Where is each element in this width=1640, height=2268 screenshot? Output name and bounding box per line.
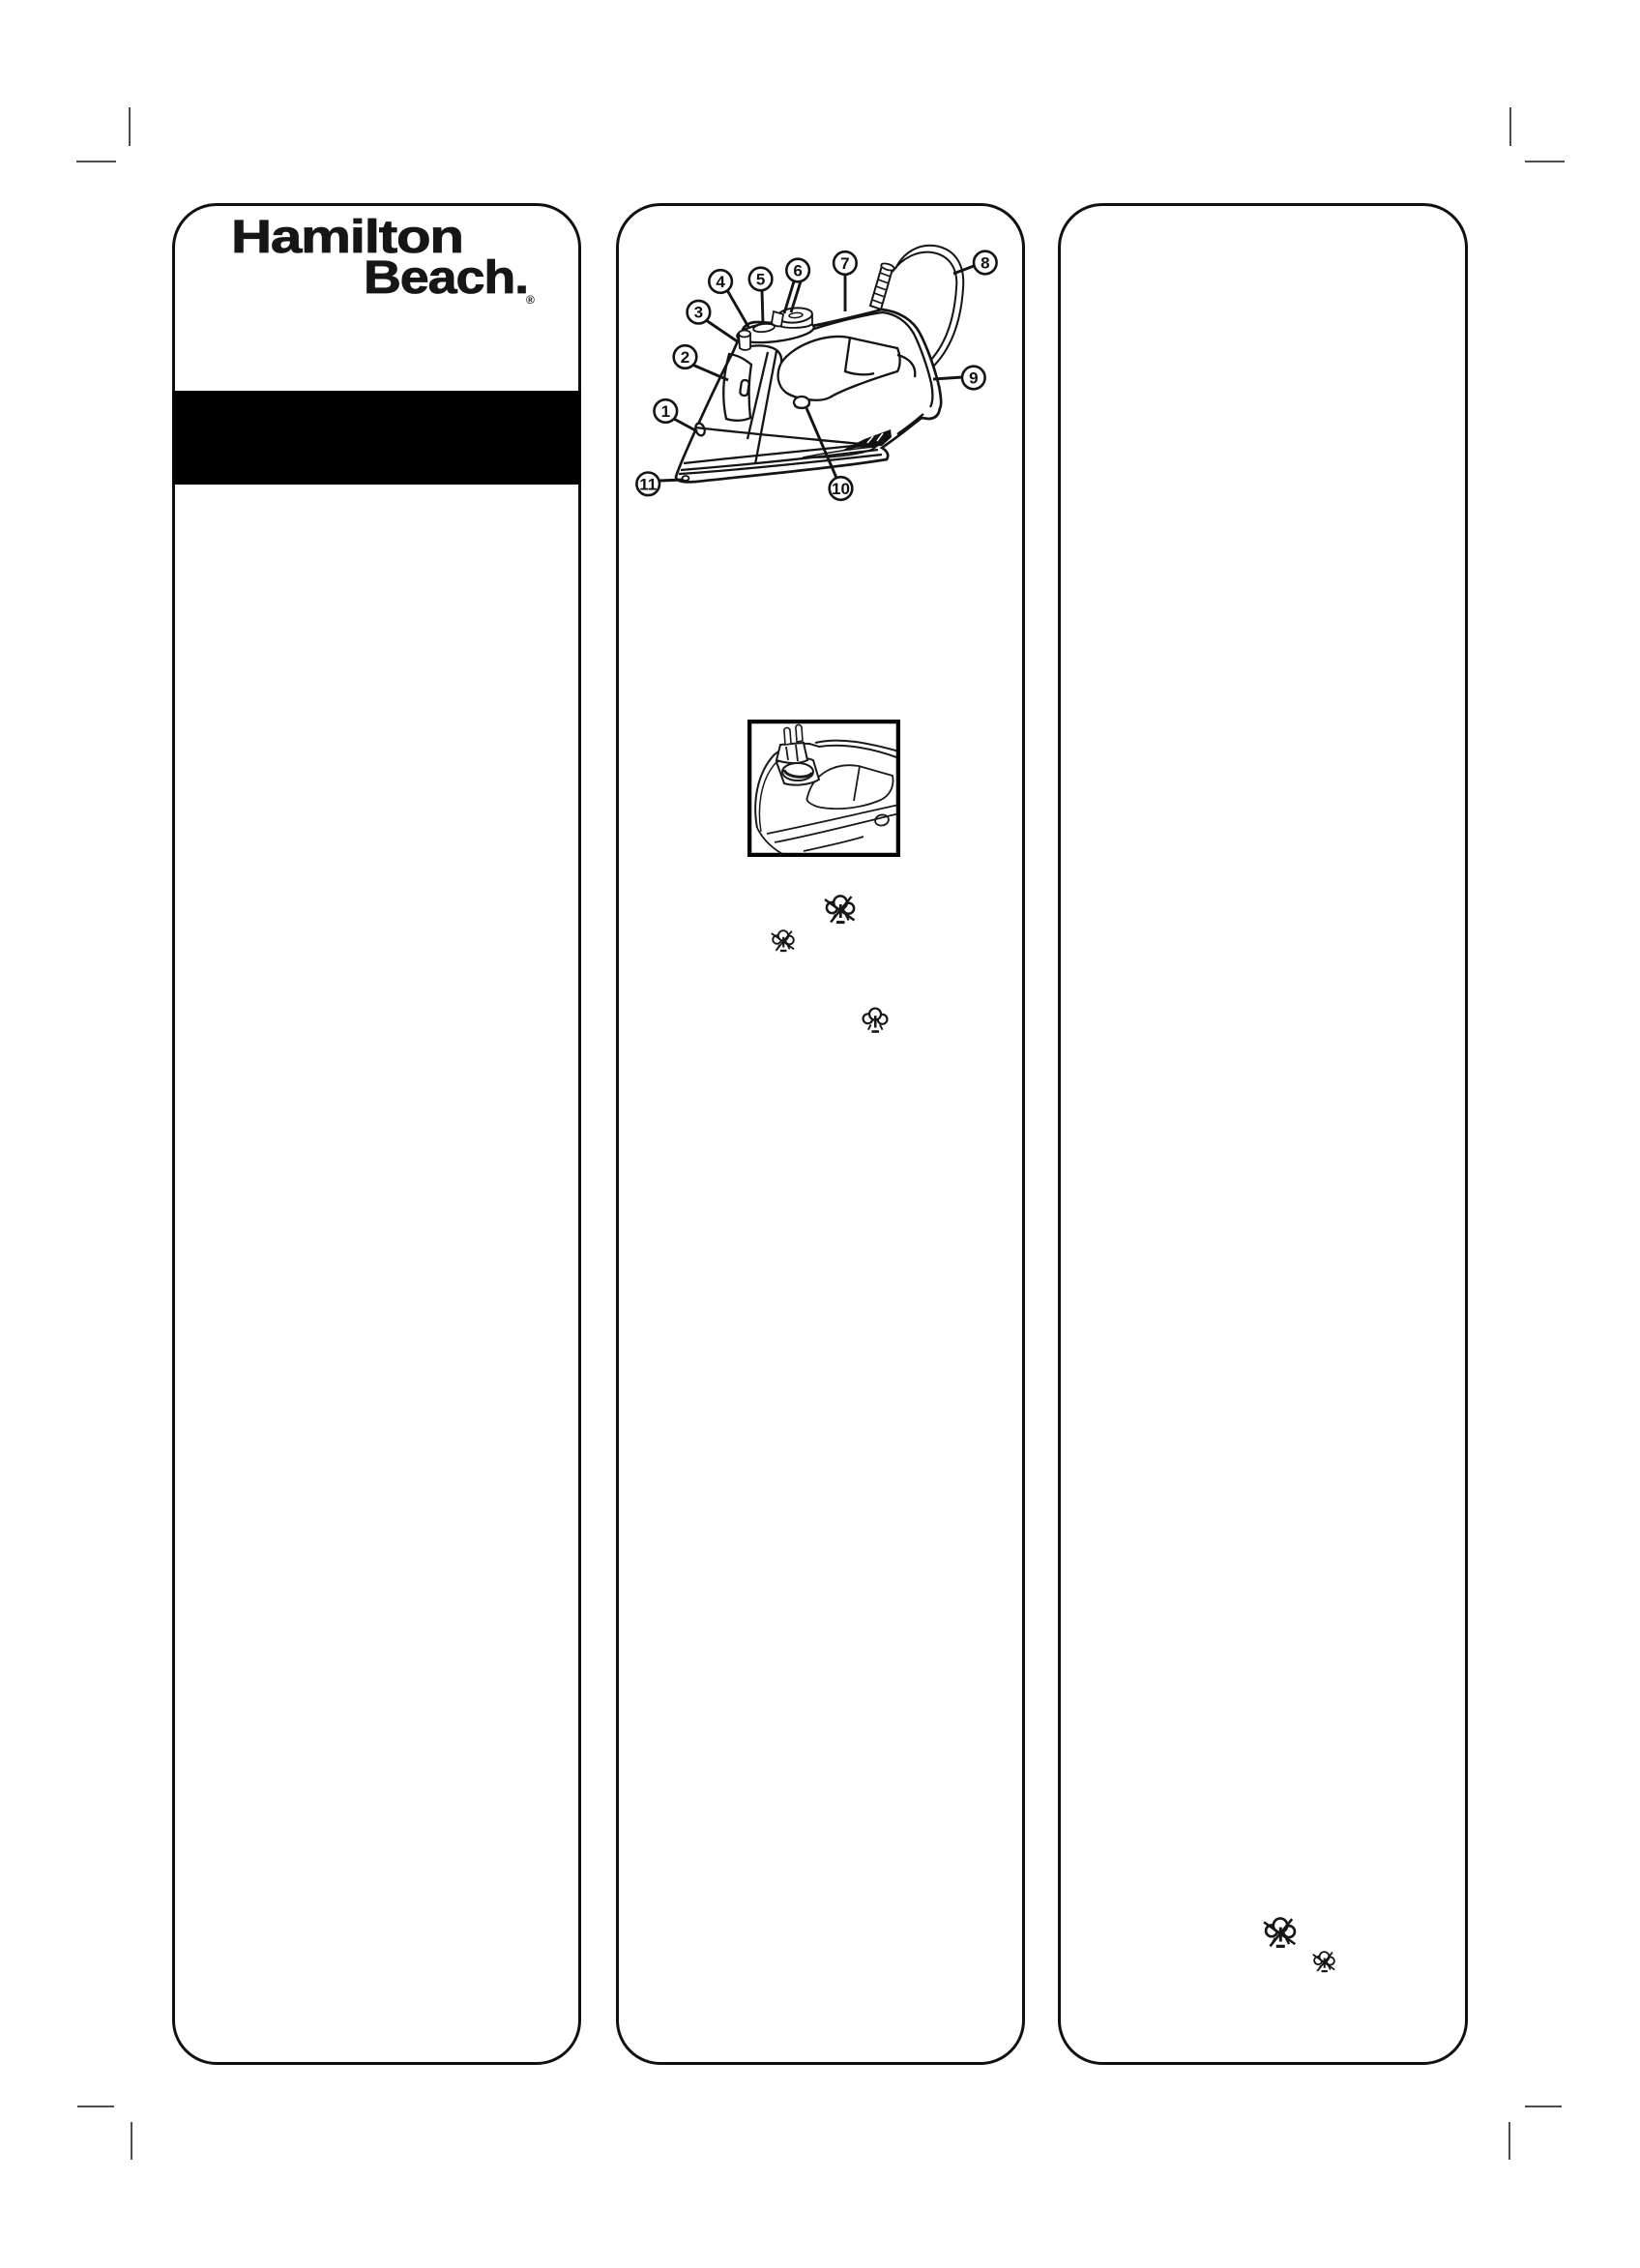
svg-text:1: 1 [661, 402, 670, 421]
svg-text:7: 7 [840, 254, 849, 273]
svg-text:8: 8 [981, 254, 989, 273]
svg-text:11: 11 [639, 475, 657, 493]
svg-text:5: 5 [756, 271, 765, 289]
svg-text:3: 3 [694, 304, 703, 322]
svg-text:10: 10 [832, 480, 850, 498]
svg-text:2: 2 [681, 348, 689, 367]
svg-text:9: 9 [969, 369, 978, 388]
svg-text:4: 4 [716, 273, 725, 291]
svg-text:6: 6 [793, 262, 802, 280]
